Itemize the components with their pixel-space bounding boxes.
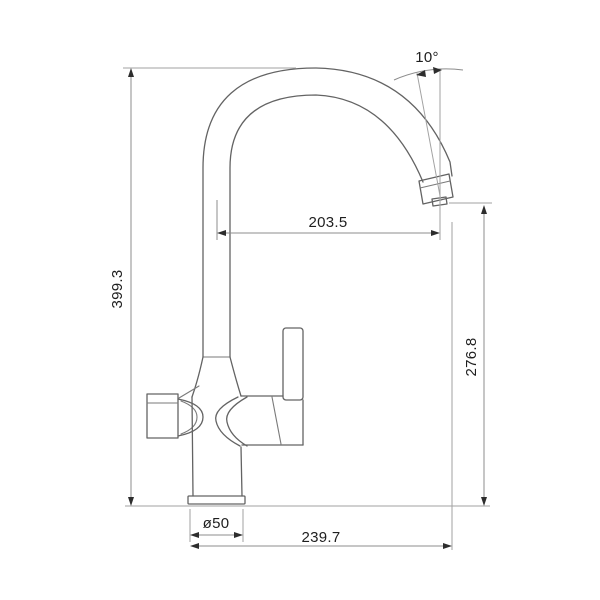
faucet-technical-drawing: 399.3 203.5 10° 276.8 bbox=[0, 0, 600, 600]
spout-outer-curve bbox=[203, 68, 452, 357]
arrowhead-arc-right bbox=[433, 67, 442, 74]
arrowhead-left bbox=[190, 532, 199, 538]
arrowhead-right bbox=[234, 532, 243, 538]
arrowhead-up bbox=[128, 68, 134, 77]
body-flare-right bbox=[230, 357, 241, 396]
dimension-overall-depth: 239.7 bbox=[190, 222, 452, 550]
valve-box-slant-line bbox=[272, 397, 281, 444]
aerator-housing bbox=[419, 174, 453, 204]
filter-handle-connector-outer bbox=[178, 399, 203, 436]
arrowhead-left bbox=[217, 230, 226, 236]
spout-angle-label: 10° bbox=[415, 49, 439, 66]
base-diameter-label: ø50 bbox=[203, 515, 230, 532]
dimension-overall-height: 399.3 bbox=[109, 68, 134, 506]
aerator-band-line bbox=[420, 181, 450, 188]
spout-reach-label: 203.5 bbox=[308, 214, 347, 231]
arrowhead-right bbox=[443, 543, 452, 549]
arrowhead-left bbox=[190, 543, 199, 549]
arrowhead-right bbox=[431, 230, 440, 236]
dimension-base-diameter: ø50 bbox=[190, 509, 243, 542]
base-column-right-edge bbox=[241, 447, 242, 496]
dimension-spout-angle: 10° bbox=[394, 49, 463, 240]
outlet-height-label: 276.8 bbox=[463, 337, 480, 376]
arrowhead-up bbox=[481, 205, 487, 214]
overall-height-label: 399.3 bbox=[109, 269, 126, 308]
arrowhead-down bbox=[128, 497, 134, 506]
filter-handle-connector-inner bbox=[181, 401, 197, 434]
angle-arc bbox=[394, 69, 463, 80]
arrowhead-down bbox=[481, 497, 487, 506]
dimension-outlet-height: 276.8 bbox=[449, 203, 492, 506]
filter-handle bbox=[147, 394, 178, 438]
body-front-curve-inner bbox=[227, 397, 247, 446]
body-left-edge bbox=[192, 397, 193, 496]
dimension-spout-reach: 203.5 bbox=[217, 200, 440, 240]
drawing-canvas: 399.3 203.5 10° 276.8 bbox=[0, 0, 600, 600]
faucet-outline bbox=[147, 68, 453, 504]
filter-handle-strut-line bbox=[179, 386, 199, 398]
body-flare-left bbox=[192, 357, 203, 397]
lever-handle bbox=[283, 328, 303, 400]
base-plate bbox=[188, 496, 245, 504]
overall-depth-label: 239.7 bbox=[301, 529, 340, 546]
